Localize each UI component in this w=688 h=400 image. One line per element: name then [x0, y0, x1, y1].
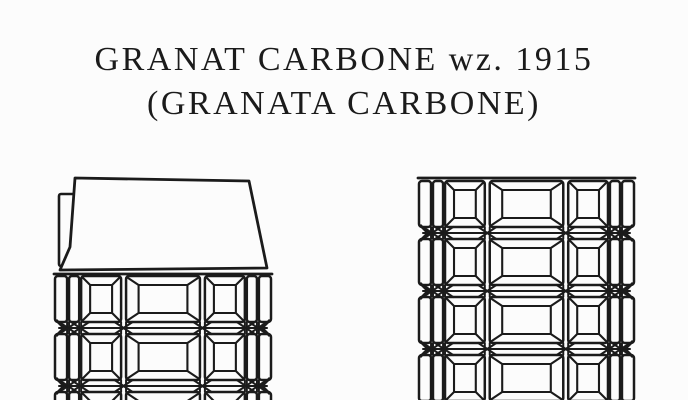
grenade-with-cap-figure — [54, 178, 272, 400]
grenade-body-figure — [418, 178, 635, 400]
technical-drawing — [0, 0, 688, 400]
scanned-document-page: GRANAT CARBONE wz. 1915 (GRANATA CARBONE… — [0, 0, 688, 400]
